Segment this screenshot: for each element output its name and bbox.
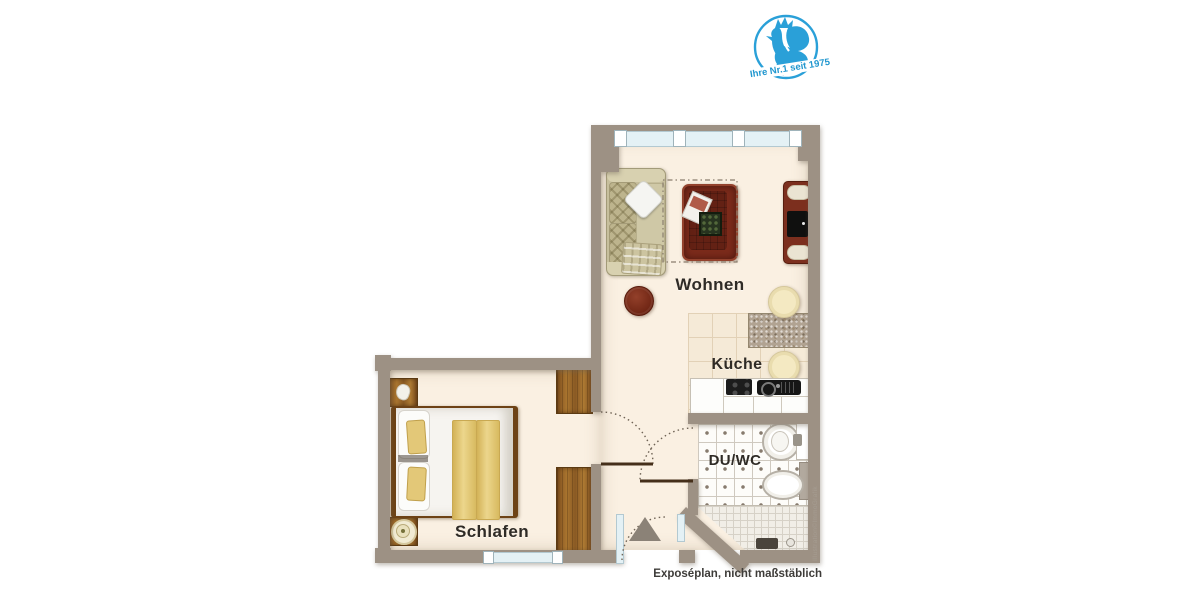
bedroom-window bbox=[486, 552, 560, 563]
window-mullion bbox=[483, 551, 494, 564]
sofa-blanket bbox=[621, 242, 663, 277]
lamp-ring bbox=[396, 524, 410, 538]
entrance-side-panel bbox=[677, 514, 685, 542]
bathroom-faucet bbox=[793, 434, 802, 446]
room-label-du-wc: DU/WC bbox=[695, 452, 775, 469]
illustration-credit: Illustration©ImmoGrafik bbox=[812, 455, 819, 561]
entrance-side-panel bbox=[616, 514, 624, 564]
magazine-photo bbox=[689, 196, 708, 213]
room-label-kueche: Küche bbox=[697, 356, 777, 374]
window-mullion bbox=[673, 130, 686, 147]
tv-screen bbox=[787, 211, 808, 237]
sideboard-bottom bbox=[787, 245, 811, 260]
wall-pillar bbox=[375, 548, 391, 563]
bed-cushion bbox=[406, 467, 427, 502]
kitchen-sink bbox=[757, 380, 801, 395]
room-label-schlafen: Schlafen bbox=[442, 522, 542, 542]
kitchen-stool bbox=[768, 286, 800, 318]
double-bed bbox=[391, 406, 518, 518]
sink-basin bbox=[771, 431, 789, 452]
toilet bbox=[762, 470, 804, 500]
counter-divider bbox=[753, 396, 754, 414]
table-lamp bbox=[391, 519, 417, 545]
window-mullion bbox=[789, 130, 802, 147]
pillow-gap-shadow bbox=[398, 455, 428, 462]
round-side-table bbox=[624, 286, 654, 316]
window-mullion bbox=[732, 130, 745, 147]
tv-sideboard bbox=[783, 181, 815, 264]
wall-segment bbox=[679, 550, 695, 563]
lamp-center bbox=[401, 529, 405, 533]
sink-bowl bbox=[761, 382, 776, 397]
room-label-wohnen: Wohnen bbox=[660, 275, 760, 295]
sink-faucet bbox=[776, 384, 780, 388]
bed-cushion bbox=[406, 419, 427, 454]
wardrobe bbox=[556, 467, 593, 553]
shower-drain bbox=[786, 538, 795, 547]
bed-blanket bbox=[476, 420, 500, 520]
floorplan-page: Ihre Nr.1 seit 1975 bbox=[0, 0, 1200, 600]
bed-blanket bbox=[452, 420, 477, 520]
window-mullion bbox=[614, 130, 627, 147]
window-mullion bbox=[552, 551, 563, 564]
table-tray bbox=[699, 212, 722, 236]
wall-pillar bbox=[375, 355, 391, 371]
tv-led bbox=[802, 222, 805, 225]
wall-segment bbox=[740, 550, 820, 563]
living-room-window bbox=[617, 131, 802, 147]
sideboard-top bbox=[787, 185, 811, 200]
shower-fixture bbox=[756, 538, 778, 549]
wardrobe bbox=[556, 366, 593, 414]
sofa-armrest-top bbox=[607, 169, 665, 182]
sink-drainer bbox=[781, 382, 797, 393]
counter-divider bbox=[781, 396, 782, 414]
stove bbox=[726, 379, 752, 395]
kitchen-bar-counter bbox=[748, 313, 810, 348]
disclaimer-text: Exposéplan, nicht maßstäblich bbox=[572, 568, 822, 580]
